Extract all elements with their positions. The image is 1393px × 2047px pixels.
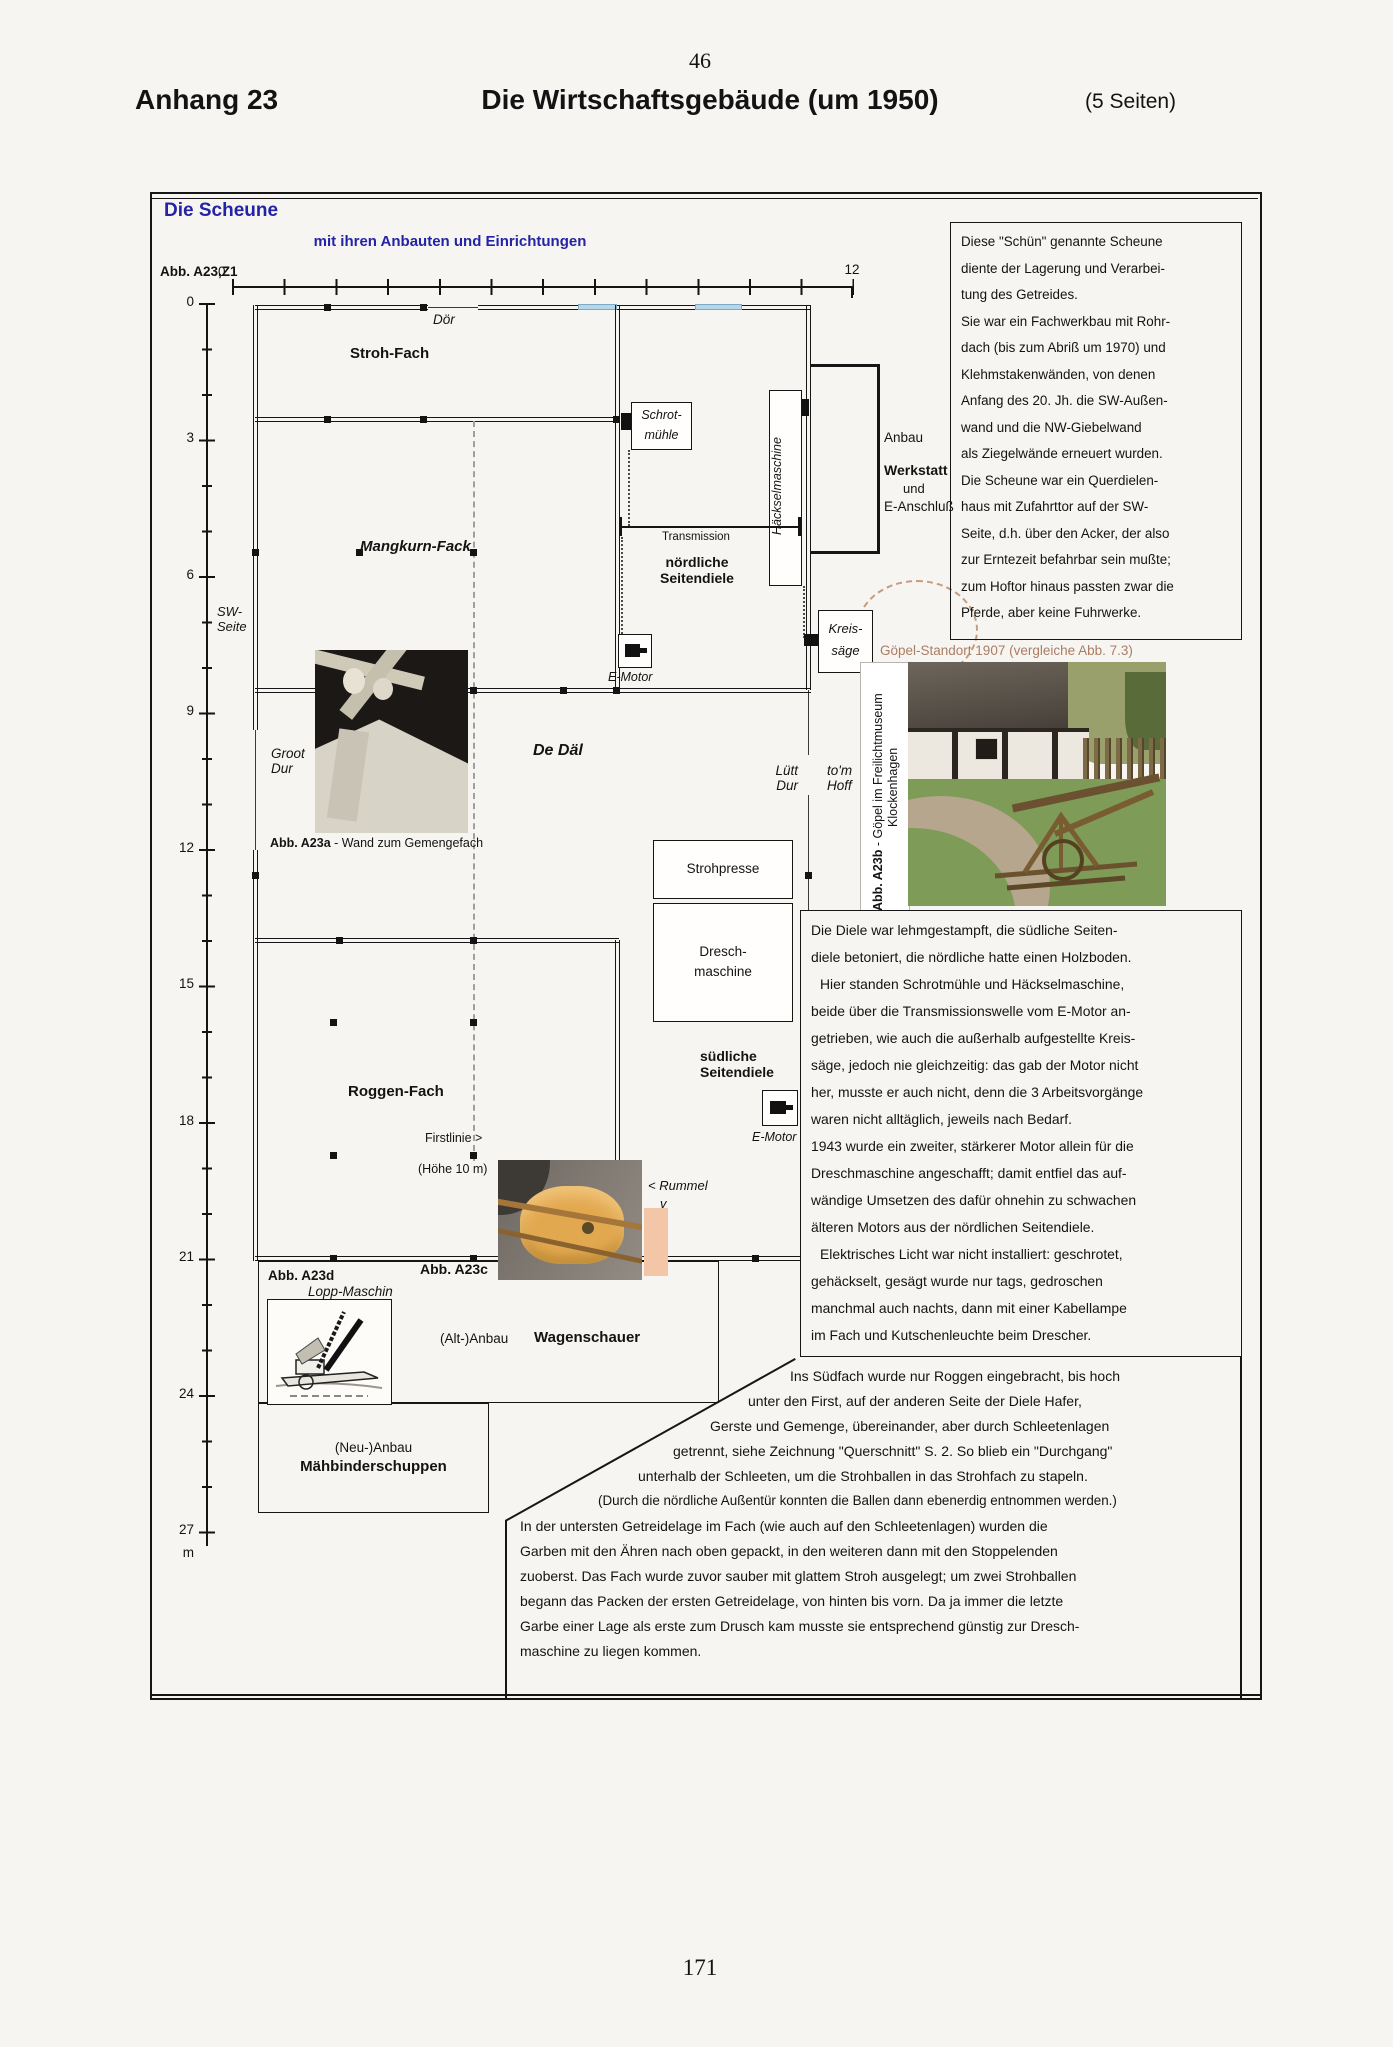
belt-line-schrot (628, 450, 630, 526)
label-sw-seite: SW-Seite (217, 604, 247, 634)
room-label-strohfach: Stroh-Fach (350, 345, 429, 362)
scanned-document-page: 46 Anhang 23 Die Wirtschaftsgebäude (um … (0, 0, 1393, 2047)
label-tom-hoff: to'mHoff (827, 763, 852, 793)
hruler-label-0: 0 (218, 264, 232, 279)
photo-a23d (267, 1299, 392, 1405)
label-und: und (903, 481, 925, 496)
machine-box-schrotmuehle: Schrot-mühle (631, 402, 692, 450)
vruler-label: 0 (164, 294, 194, 309)
machine-box-emotor-north (618, 634, 652, 668)
machine-box-haecksel: Häckselmaschine (769, 390, 802, 586)
room-label-dedael: De Däl (533, 742, 583, 760)
page-number-top: 46 (630, 48, 770, 74)
hruler-label-12: 12 (838, 262, 866, 277)
caption-a23c: Abb. A23c (420, 1261, 488, 1277)
appendix-label: Anhang 23 (135, 84, 278, 116)
label-emotor-north: E-Motor (608, 670, 652, 684)
wall-inner-upper (615, 305, 620, 690)
vruler-label: 12 (164, 840, 194, 855)
label-e-anschluss: E-Anschluß (884, 499, 954, 514)
section-title: Die Scheune (164, 200, 278, 222)
label-neu-anbau: (Neu-)Anbau (258, 1440, 489, 1455)
caption-a23b: Abb. A23b - Göpel im Freilichtmuseum Klo… (860, 662, 910, 912)
label-goepel-standort: Göpel-Standort 1907 (vergleiche Abb. 7.3… (880, 643, 1133, 658)
caption-a23d-title: Lopp-Maschin (308, 1284, 393, 1299)
photo-a23a (315, 650, 468, 833)
transmission-tick-right (798, 517, 801, 536)
belt-line-emotor (621, 537, 623, 634)
door-leaf-doer (428, 307, 478, 308)
gate-leaf-groot-dur (255, 730, 256, 850)
label-anbau: Anbau (884, 430, 923, 445)
textbox-right-mid: Die Diele war lehmgestampft, die südlich… (800, 910, 1242, 1357)
vruler-label: 18 (164, 1113, 194, 1128)
vruler-minor-ticks (202, 303, 212, 1535)
room-label-noerdliche: nördlicheSeitendiele (647, 554, 747, 586)
ridge-line-dashed (473, 421, 475, 1161)
door-blue-segment (578, 304, 617, 310)
vruler-label: 27 (164, 1522, 194, 1537)
label-transmission: Transmission (662, 531, 730, 543)
room-label-suedliche: südlicheSeitendiele (700, 1048, 774, 1080)
anbau-wall-bottom (810, 551, 880, 554)
label-doer: Dör (433, 312, 455, 327)
machine-box-strohpresse: Strohpresse (653, 840, 793, 899)
vruler-unit: m (164, 1545, 194, 1560)
bottom-block-bottom-border (150, 1694, 1262, 1696)
bottom-text-block: Ins Südfach wurde nur Roggen eingebracht… (505, 1358, 1242, 1688)
pages-count: (5 Seiten) (1085, 90, 1176, 114)
label-rummel: < Rummel (648, 1178, 708, 1193)
belt-line-haecksel (803, 586, 805, 638)
goepel-machine (985, 764, 1155, 899)
kreissaege-mount (804, 634, 818, 646)
label-firstlinie: Firstlinie > (425, 1131, 482, 1145)
schrotmuehle-mount (621, 413, 631, 430)
door-blue-segment (695, 304, 742, 310)
label-maehbinder: Mähbinderschuppen (258, 1458, 489, 1475)
vruler-label: 21 (164, 1249, 194, 1264)
photo-a23c (498, 1160, 642, 1280)
wall-ne-upper (806, 305, 811, 690)
vruler-label: 6 (164, 567, 194, 582)
textbox-right-top: Diese "Schün" genannte Scheune diente de… (950, 222, 1242, 640)
label-groot-dur: GrootDur (271, 746, 305, 776)
door-gap-luett-dur (807, 755, 810, 795)
transmission-tick-left (619, 517, 622, 536)
color-swatch-pink (644, 1208, 668, 1276)
label-hoehe: (Höhe 10 m) (418, 1162, 487, 1176)
caption-a23a: Abb. A23a - Wand zum Gemengefach (270, 836, 483, 850)
page-number-bottom: 171 (630, 1955, 770, 1981)
machine-box-dreschmaschine: Dresch-maschine (653, 903, 793, 1022)
vruler-label: 9 (164, 703, 194, 718)
frame-top-rule (152, 198, 1258, 199)
label-werkstatt: Werkstatt (884, 462, 948, 478)
vruler-label: 24 (164, 1386, 194, 1401)
machine-box-emotor-south (762, 1090, 798, 1126)
transmission-line (621, 526, 801, 528)
label-wagenschauer: Wagenschauer (534, 1329, 640, 1346)
photo-a23b (908, 662, 1166, 906)
label-alt-anbau: (Alt-)Anbau (440, 1331, 508, 1346)
room-label-roggen: Roggen-Fach (348, 1083, 444, 1100)
document-title: Die Wirtschaftsgebäude (um 1950) (360, 84, 1060, 116)
vruler-label: 15 (164, 976, 194, 991)
vruler-label: 3 (164, 430, 194, 445)
label-emotor-south: E-Motor (752, 1130, 796, 1144)
label-rummel-arrow: v (660, 1196, 667, 1211)
room-label-mangkurn: Mangkurn-Fack (360, 538, 471, 555)
wall-strohfach-south (255, 417, 619, 422)
label-luett-dur: LüttDur (750, 763, 798, 793)
anbau-wall-right (877, 364, 880, 554)
wall-dael-south (255, 938, 619, 943)
section-subtitle: mit ihren Anbauten und Einrichtungen (240, 233, 660, 250)
hruler-end-hook (851, 287, 853, 298)
scale-ruler-horizontal (232, 279, 854, 295)
anbau-wall-top (810, 364, 880, 367)
wall-ne-door-zone (808, 690, 809, 940)
caption-a23d: Abb. A23d (268, 1268, 334, 1283)
